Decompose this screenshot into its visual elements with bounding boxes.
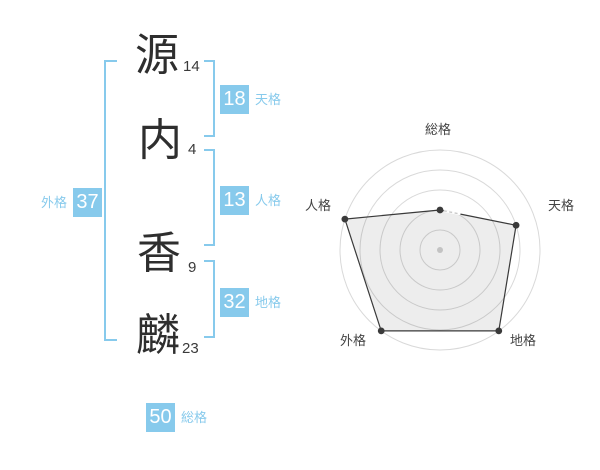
gaikaku-label: 外格 (41, 196, 67, 209)
jinkaku-value-badge: 13 (220, 186, 249, 215)
name-char-3: 香 (137, 232, 181, 276)
stroke-count-1: 14 (183, 59, 200, 74)
tenkaku-axis-label: 天格 (548, 199, 574, 212)
stroke-count-3: 9 (188, 260, 196, 275)
soukaku-axis-label: 総格 (425, 123, 451, 136)
chikaku-value-badge: 32 (220, 288, 249, 317)
name-analysis-page: 源 14 内 4 香 9 麟 23 18 天格 13 人格 32 地格 外格 3… (0, 0, 600, 470)
bracket-chikaku (204, 260, 215, 338)
soukaku-row: 50 総格 (146, 403, 207, 432)
gaikaku-row: 外格 37 (41, 188, 102, 217)
gaikaku-axis-label: 外格 (340, 334, 366, 347)
bracket-tenkaku (204, 60, 215, 137)
chikaku-row: 32 地格 (220, 288, 281, 317)
jinkaku-axis-label: 人格 (305, 199, 331, 212)
soukaku-value-badge: 50 (146, 403, 175, 432)
jinkaku-label: 人格 (255, 194, 281, 207)
gaikaku-value-badge: 37 (73, 188, 102, 217)
radar-polygon (345, 210, 516, 331)
name-char-1: 源 (135, 34, 179, 78)
name-char-4: 麟 (136, 314, 180, 358)
radar-center-dot (437, 247, 443, 253)
chikaku-axis-label: 地格 (510, 334, 536, 347)
name-char-2: 内 (138, 119, 182, 163)
chikaku-label: 地格 (255, 296, 281, 309)
stroke-count-2: 4 (188, 142, 196, 157)
tenkaku-row: 18 天格 (220, 85, 281, 114)
jinkaku-row: 13 人格 (220, 186, 281, 215)
stroke-count-4: 23 (182, 341, 199, 356)
tenkaku-value-badge: 18 (220, 85, 249, 114)
soukaku-label: 総格 (181, 411, 207, 424)
tenkaku-label: 天格 (255, 93, 281, 106)
bracket-jinkaku (204, 149, 215, 246)
bracket-gaikaku (104, 60, 117, 341)
